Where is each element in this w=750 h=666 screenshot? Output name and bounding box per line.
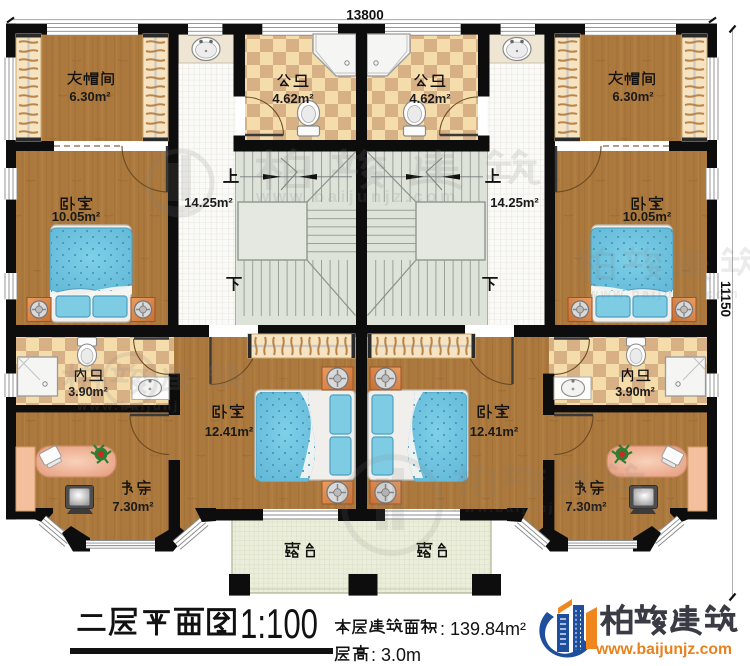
svg-text:6.30m²: 6.30m² bbox=[69, 89, 111, 104]
svg-text:www.baijunjz.com: www.baijunjz.com bbox=[255, 187, 459, 206]
svg-text:: 139.84m²: : 139.84m² bbox=[440, 619, 526, 639]
svg-text:www.baijunjz.com: www.baijunjz.com bbox=[587, 286, 740, 301]
svg-text:4.62m²: 4.62m² bbox=[409, 91, 451, 106]
svg-text:10.05m²: 10.05m² bbox=[52, 209, 101, 224]
svg-text:www.baijunjz.com: www.baijunjz.com bbox=[451, 500, 604, 515]
svg-text:1:100: 1:100 bbox=[240, 600, 318, 647]
svg-text:www.baijunjz.com: www.baijunjz.com bbox=[76, 398, 229, 413]
svg-text:10.05m²: 10.05m² bbox=[623, 209, 672, 224]
svg-text:: 3.0m: : 3.0m bbox=[371, 645, 421, 665]
svg-text:12.41m²: 12.41m² bbox=[470, 424, 519, 439]
svg-text:6.30m²: 6.30m² bbox=[612, 89, 654, 104]
svg-text:12.41m²: 12.41m² bbox=[205, 424, 254, 439]
svg-text:4.62m²: 4.62m² bbox=[272, 91, 314, 106]
svg-text:3.90m²: 3.90m² bbox=[615, 385, 655, 399]
svg-text:7.30m²: 7.30m² bbox=[112, 499, 154, 514]
svg-text:14.25m²: 14.25m² bbox=[490, 195, 539, 210]
svg-text:13800: 13800 bbox=[346, 8, 384, 23]
svg-text:www.baijunjz.com: www.baijunjz.com bbox=[595, 641, 732, 658]
